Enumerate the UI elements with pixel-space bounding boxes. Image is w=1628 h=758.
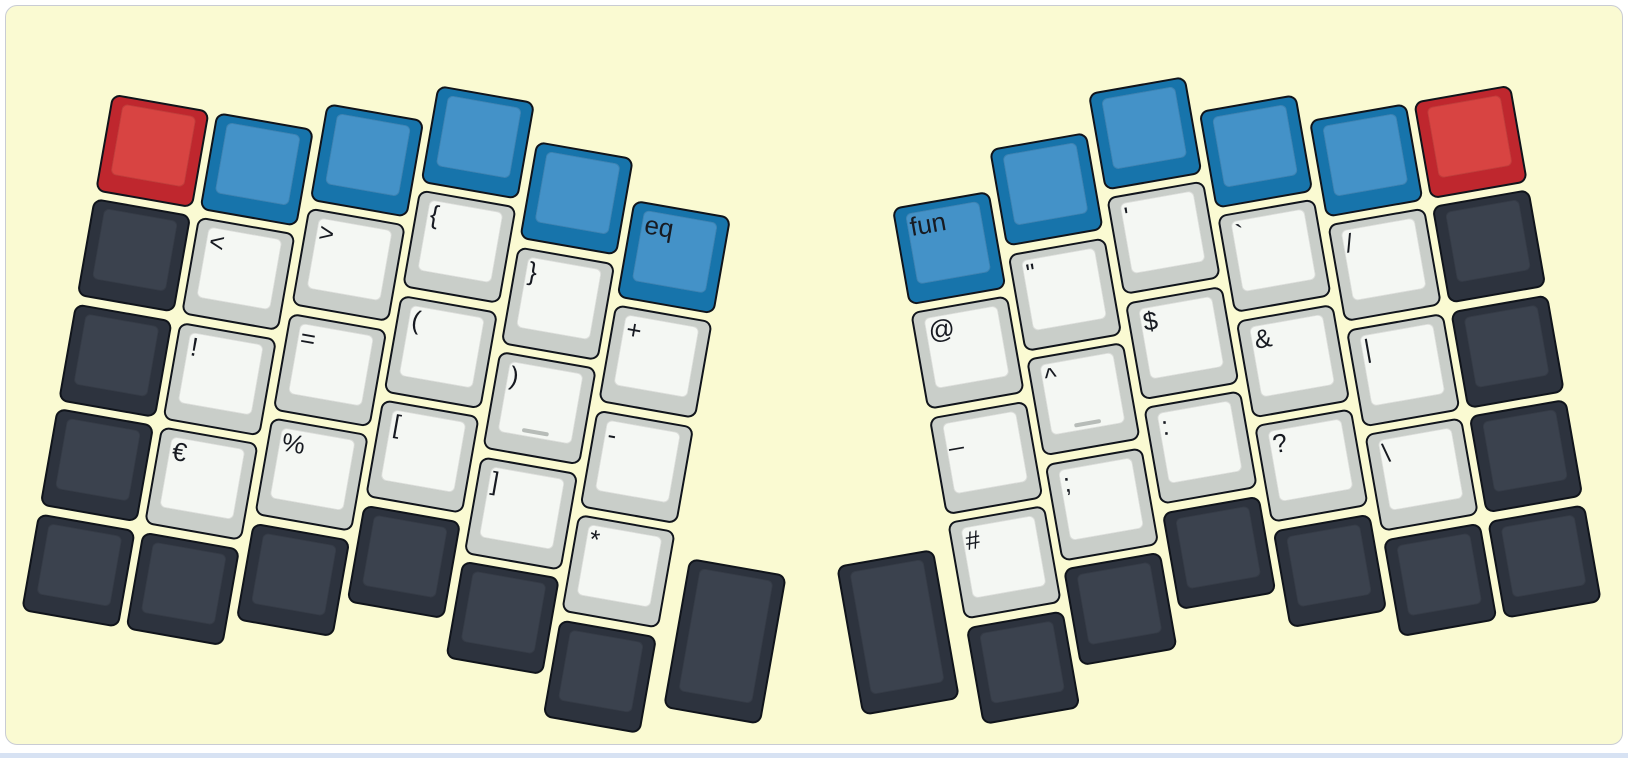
key-#[interactable]: # [947, 505, 1062, 620]
key-left-c3-r4[interactable] [347, 504, 462, 619]
keycap-top-face [73, 313, 159, 397]
key-right-c1-r0[interactable] [1309, 103, 1424, 218]
key-right-c2-r4[interactable] [1273, 513, 1388, 628]
key-left-c0-r2[interactable] [58, 303, 173, 418]
key-right-c3-r0[interactable] [1088, 76, 1203, 191]
key-legend: fun [908, 207, 949, 243]
key-right-c4-r4[interactable] [1063, 552, 1178, 667]
key-right-c4-r0[interactable] [989, 132, 1104, 247]
key-?[interactable]: ? [1254, 408, 1369, 523]
key-:[interactable]: : [1143, 390, 1258, 505]
keycap-top-face [1077, 562, 1163, 646]
key-right-c0-r4[interactable] [1487, 504, 1602, 619]
keycap-top-face [54, 418, 140, 502]
keycap-top-face [1119, 191, 1205, 275]
key--[interactable]: - [580, 409, 695, 524]
keycap-top-face [678, 568, 774, 704]
keycap-top-face [1340, 218, 1426, 302]
key-^[interactable]: ^ [1026, 342, 1141, 457]
keycap-top-face [436, 95, 522, 179]
keycap-top-face [110, 103, 196, 187]
keycap-top-face [534, 151, 620, 235]
key-right-c1-r4[interactable] [1383, 522, 1498, 637]
key-right-thumb[interactable] [836, 549, 960, 716]
key-_[interactable]: _ [928, 400, 1043, 515]
keycap-top-face [251, 532, 337, 616]
key-[[interactable]: [ [365, 399, 480, 514]
keyboard-layout-screen: <!€>=%{([})]eq+-* /|\`&?'$:"^;fun@_# [0, 0, 1628, 758]
key-left-c1-r0[interactable] [200, 112, 315, 227]
key-left-c2-r4[interactable] [236, 522, 351, 637]
key-eq[interactable]: eq [617, 200, 732, 315]
key-/[interactable]: / [1327, 208, 1442, 323]
key-left-c4-r4[interactable] [445, 561, 560, 676]
key-{[interactable]: { [402, 190, 517, 305]
keycap-top-face [849, 559, 945, 695]
keyboard-canvas: <!€>=%{([})]eq+-* /|\`&?'$:"^;fun@_# [5, 5, 1623, 745]
key-][interactable]: ] [463, 456, 578, 571]
keycap-top-face [1359, 323, 1445, 407]
keycap-top-face [325, 113, 411, 197]
keycap-top-face [558, 629, 644, 713]
keycap-top-face [91, 208, 177, 292]
keycap-top-face [979, 620, 1065, 704]
key-'[interactable]: ' [1106, 181, 1221, 296]
keycap-top-face [1322, 113, 1408, 197]
key-right-c0-r3[interactable] [1469, 399, 1584, 514]
key-&[interactable]: & [1236, 304, 1351, 419]
key-![interactable]: ! [163, 322, 278, 437]
key-right-c0-r1[interactable] [1432, 189, 1547, 304]
key->[interactable]: > [291, 208, 406, 323]
key-left-c0-r1[interactable] [76, 198, 191, 313]
keycap-top-face [1286, 523, 1372, 607]
key-@[interactable]: @ [910, 295, 1025, 410]
keycap-top-face [362, 514, 448, 598]
keycap-top-face [1101, 86, 1187, 170]
keycap-top-face [141, 541, 227, 625]
key-fun[interactable]: fun [891, 191, 1006, 306]
keycap-top-face [1231, 209, 1317, 293]
key-right-c0-r2[interactable] [1450, 294, 1565, 409]
key-|[interactable]: | [1346, 313, 1461, 428]
keycap-top-face [1212, 104, 1298, 188]
key-left-c0-r0[interactable] [95, 93, 210, 208]
key-left-c1-r4[interactable] [126, 531, 241, 646]
keycap-top-face [215, 122, 301, 206]
key-left-c5-r4[interactable] [543, 619, 658, 734]
keycap-top-face [460, 571, 546, 655]
key-)[interactable]: ) [482, 351, 597, 466]
keycap-top-face [1021, 247, 1107, 331]
keycap-top-face [1501, 514, 1587, 598]
key-"[interactable]: " [1008, 237, 1123, 352]
key-right-c5-r4[interactable] [965, 610, 1080, 725]
key-right-c0-r0[interactable] [1413, 84, 1528, 199]
keycap-top-face [1464, 304, 1550, 388]
keycap-top-face [1377, 427, 1463, 511]
key-left-c4-r0[interactable] [519, 141, 634, 256]
key-\[interactable]: \ [1364, 417, 1479, 532]
key-`[interactable]: ` [1217, 199, 1332, 314]
key-([interactable]: ( [384, 295, 499, 410]
key-left-c0-r4[interactable] [21, 513, 136, 628]
key-<[interactable]: < [181, 217, 296, 332]
key-;[interactable]: ; [1045, 447, 1160, 562]
key-=[interactable]: = [272, 313, 387, 428]
keycap-top-face [1445, 199, 1531, 283]
key-$[interactable]: $ [1125, 286, 1240, 401]
key-%[interactable]: % [254, 417, 369, 532]
key-legend: eq [642, 210, 676, 244]
key-right-c3-r4[interactable] [1162, 495, 1277, 610]
key-right-c2-r0[interactable] [1199, 94, 1314, 209]
keycap-top-face [1482, 409, 1568, 493]
keycap-top-face [1003, 142, 1089, 226]
key-legend: @ [926, 313, 957, 347]
bottom-edge-strip [0, 753, 1628, 758]
key-left-c3-r0[interactable] [421, 85, 536, 200]
keycap-top-face [1156, 400, 1242, 484]
key-€[interactable]: € [144, 426, 259, 541]
key-left-c2-r0[interactable] [309, 103, 424, 218]
keycap-top-face [36, 523, 122, 607]
key-left-thumb[interactable] [663, 558, 787, 725]
keycap-top-face [1058, 457, 1144, 541]
key-left-c0-r3[interactable] [39, 408, 154, 523]
key-}[interactable]: } [500, 246, 615, 361]
keycap-top-face [1427, 94, 1513, 178]
key-*[interactable]: * [561, 514, 676, 629]
keycap-top-face [1396, 532, 1482, 616]
key-+[interactable]: + [598, 304, 713, 419]
keycap-top-face [1175, 505, 1261, 589]
